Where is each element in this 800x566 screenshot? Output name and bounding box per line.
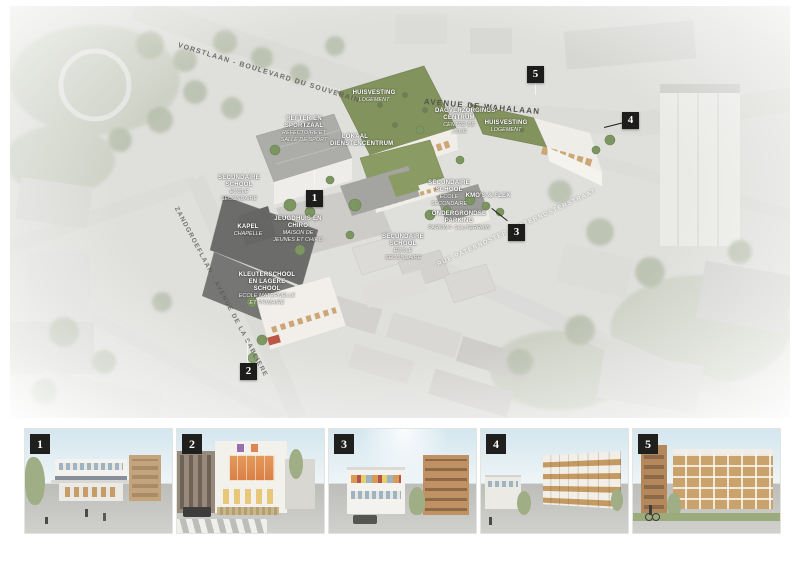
person — [45, 517, 48, 524]
window-band — [59, 463, 123, 470]
label-refectory-sports: REFTER EN SPORTZAAL RÉFECTOIRE ET SALLE … — [278, 116, 330, 143]
poster-sheet: VORSTLAAN - BOULEVARD DU SOUVERAIN AVENU… — [0, 0, 800, 566]
thumbnail-5-badge: 5 — [638, 434, 658, 454]
label-underground-parking: ONDERGRONDSE PARKING PARKING SOUTERRAIN — [428, 211, 490, 232]
parked-car — [183, 507, 211, 517]
label-nl: JEUGDHUIS EN CHIRO — [272, 216, 324, 230]
glazing-grid — [229, 455, 275, 481]
label-housing-east: HUISVESTING LOGEMENT — [478, 120, 534, 134]
label-nl: KMO'S & FLEX — [462, 193, 514, 200]
tower-windows — [644, 449, 664, 509]
colored-window-band — [351, 475, 401, 483]
window-band — [488, 481, 518, 487]
orange-window — [251, 444, 258, 452]
marker-5-leader — [535, 83, 536, 95]
colored-columns — [65, 487, 117, 497]
label-fr: MAISON DE JEUNES ET CHIRO — [272, 230, 324, 243]
person — [85, 509, 88, 517]
label-fr: RÉFECTOIRE ET SALLE DE SPORT — [278, 130, 330, 143]
label-fr: PARKING SOUTERRAIN — [428, 225, 490, 231]
balcony-dividers — [543, 451, 621, 509]
label-fr: LOGEMENT — [478, 127, 534, 133]
tree — [25, 457, 45, 505]
label-nl: REFTER EN SPORTZAAL — [278, 116, 330, 130]
plan-marker-1: 1 — [306, 190, 323, 207]
label-secondary-school-south: SECUNDAIRE SCHOOL ECOLE SECONDAIRE — [378, 234, 428, 261]
plan-marker-5: 5 — [527, 66, 544, 83]
purple-window — [237, 444, 244, 452]
label-fr: CHAPELLE — [228, 231, 268, 237]
label-secondary-school-west: SECUNDAIRE SCHOOL ECOLE SECONDAIRE — [214, 175, 264, 202]
label-daycare-center: DAGVERZORGINGS- CENTRUM CENTRE DE JOUR — [435, 108, 483, 135]
label-nl: DAGVERZORGINGS- CENTRUM — [435, 108, 483, 122]
label-fr: ECOLE SECONDAIRE — [378, 248, 428, 261]
tree — [289, 449, 303, 479]
plan-marker-4: 4 — [622, 112, 639, 129]
roof-band — [673, 449, 773, 454]
marker-1-leader — [314, 170, 315, 190]
person — [489, 517, 492, 525]
label-nl: SECUNDAIRE SCHOOL — [214, 175, 264, 189]
label-fr: ECOLE SECONDAIRE — [214, 189, 264, 202]
balcony-lines — [425, 459, 467, 511]
thumbnail-3-badge: 3 — [334, 434, 354, 454]
label-fr: ECOLE MATERNELLE ET PRIMAIRE — [238, 293, 296, 306]
site-plan-drawing — [10, 6, 790, 418]
person — [103, 513, 106, 521]
old-facade-windows — [180, 455, 212, 509]
tree — [409, 487, 425, 515]
crosswalk — [177, 519, 267, 533]
thumbnail-5-housing-cyclist: 5 — [633, 429, 780, 533]
label-nl: ONDERGRONDSE PARKING — [428, 211, 490, 225]
plan-marker-2: 2 — [240, 363, 257, 380]
label-sme-flex: KMO'S & FLEX — [462, 193, 514, 200]
bike-wheel — [652, 513, 660, 521]
window-band — [351, 491, 401, 499]
label-chapel: KAPEL CHAPELLE — [228, 224, 268, 238]
label-nl: KLEUTERSCHOOL EN LAGERE SCHOOL — [238, 272, 296, 293]
tree — [611, 489, 623, 511]
thumbnail-2-badge: 2 — [182, 434, 202, 454]
label-fr: CENTRE DE JOUR — [435, 122, 483, 135]
label-service-center: LOKAAL DIENSTENCENTRUM — [330, 134, 380, 148]
label-housing-north: HUISVESTING LOGEMENT — [345, 90, 403, 104]
lower-windows — [223, 489, 277, 504]
tree — [517, 491, 531, 515]
thumbnail-1-badge: 1 — [30, 434, 50, 454]
label-youth-house: JEUGDHUIS EN CHIRO MAISON DE JEUNES ET C… — [272, 216, 324, 243]
brick-windows — [132, 459, 158, 497]
label-kindergarten: KLEUTERSCHOOL EN LAGERE SCHOOL ECOLE MAT… — [238, 272, 296, 306]
thumbnail-1-school-plaza: 1 — [25, 429, 172, 533]
aerial-site-rendering — [10, 6, 790, 418]
facade-grid — [673, 453, 773, 509]
thumbnail-2-kindergarten-corner: 2 — [177, 429, 324, 533]
plan-marker-3: 3 — [508, 224, 525, 241]
fence — [217, 507, 279, 515]
label-nl: LOKAAL DIENSTENCENTRUM — [330, 134, 380, 148]
car — [353, 515, 377, 524]
marker-2-leader — [247, 340, 248, 363]
label-nl: SECUNDAIRE SCHOOL — [378, 234, 428, 248]
thumbnail-4-housing-balconies: 4 — [481, 429, 628, 533]
thumbnail-4-badge: 4 — [486, 434, 506, 454]
thumbnail-3-school-housing-street: 3 — [329, 429, 476, 533]
label-fr: LOGEMENT — [345, 97, 403, 103]
